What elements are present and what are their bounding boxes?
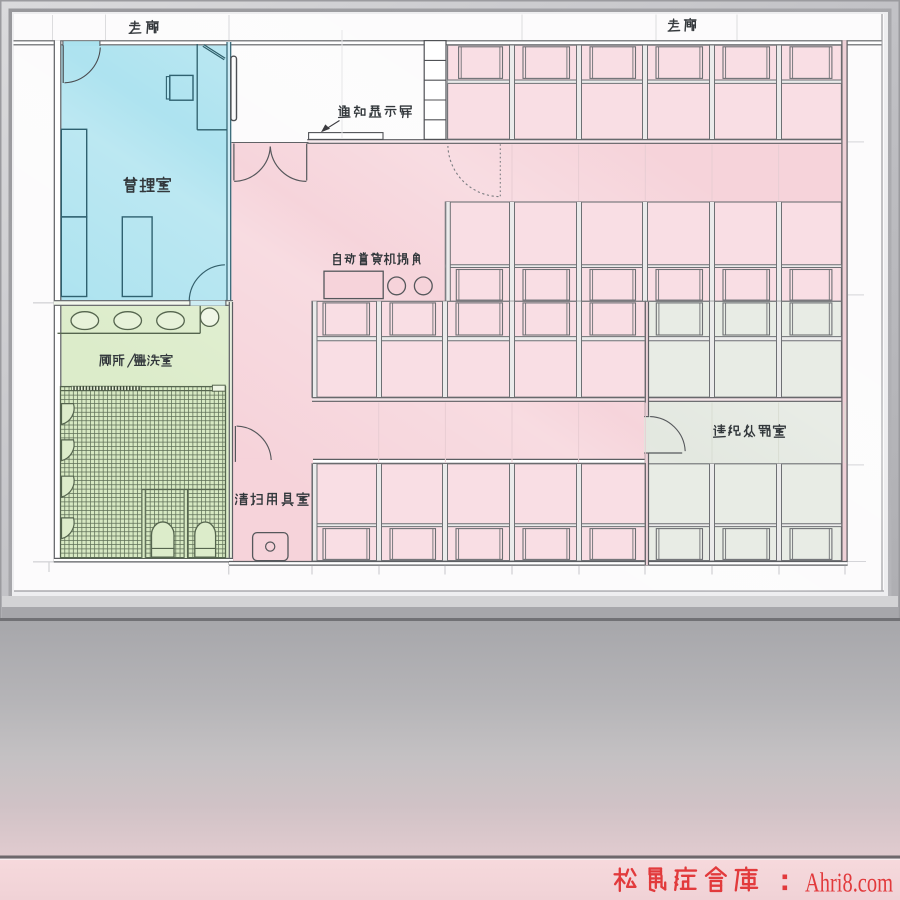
svg-text:Ahri8.com: Ahri8.com: [805, 868, 893, 898]
